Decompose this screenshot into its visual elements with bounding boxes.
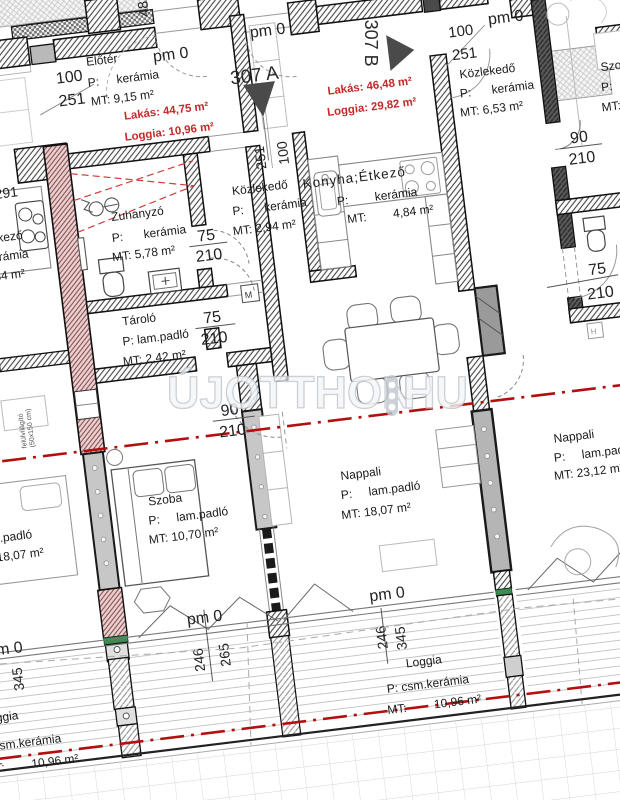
- svg-text:P:: P:: [148, 512, 161, 527]
- svg-text:210: 210: [568, 149, 597, 169]
- svg-text:210: 210: [195, 246, 224, 266]
- svg-text:P:: P:: [232, 203, 245, 218]
- svg-text:P:: P:: [553, 450, 566, 465]
- svg-text:MT:: MT:: [346, 210, 367, 226]
- svg-text:48: 48: [134, 0, 152, 18]
- svg-text:75: 75: [202, 308, 222, 327]
- svg-text:345: 345: [391, 625, 410, 650]
- svg-text:210: 210: [200, 329, 229, 349]
- svg-text:M: M: [244, 289, 253, 300]
- svg-text:100: 100: [447, 22, 474, 42]
- svg-text:75: 75: [196, 227, 216, 246]
- svg-text:100: 100: [55, 68, 84, 88]
- svg-text:251: 251: [58, 90, 87, 110]
- svg-text:345: 345: [9, 666, 28, 691]
- svg-text:P:: P:: [600, 79, 613, 94]
- svg-text:MT:: MT:: [601, 98, 620, 114]
- svg-text:MT:: MT:: [387, 701, 408, 717]
- svg-text:90: 90: [569, 128, 589, 147]
- svg-text:P:: P:: [340, 487, 353, 502]
- svg-text:75: 75: [587, 260, 607, 279]
- svg-text:ÚJOTTHON: ÚJOTTHON: [167, 367, 415, 418]
- svg-text:251: 251: [451, 44, 478, 64]
- svg-text:P:: P:: [336, 193, 349, 208]
- svg-text:P:: P:: [111, 230, 124, 245]
- svg-text:P:: P:: [459, 85, 472, 100]
- svg-text:100: 100: [273, 140, 292, 165]
- svg-text:291: 291: [0, 183, 19, 202]
- svg-text:307 B: 307 B: [361, 20, 381, 67]
- svg-text:HU: HU: [403, 367, 468, 418]
- svg-text:265: 265: [215, 642, 234, 667]
- svg-text:210: 210: [218, 421, 247, 441]
- svg-text:P:: P:: [87, 75, 100, 90]
- svg-text:210: 210: [586, 283, 615, 303]
